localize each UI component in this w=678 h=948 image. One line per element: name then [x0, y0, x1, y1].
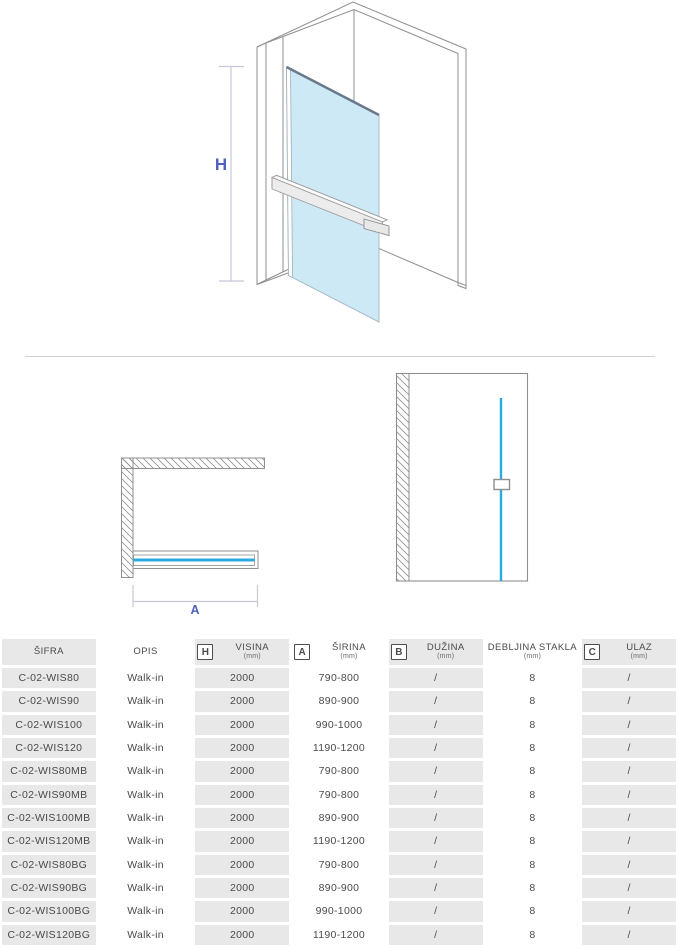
- height-dim-label: H: [215, 155, 227, 174]
- top-view: A: [122, 458, 265, 617]
- table-cell: C-02-WIS100BG: [2, 901, 96, 921]
- table-row: C-02-WIS90BGWalk-in2000890-900/8/: [2, 878, 676, 898]
- table-cell: Walk-in: [99, 738, 193, 758]
- table-cell: Walk-in: [99, 901, 193, 921]
- table-cell: 8: [486, 878, 580, 898]
- table-cell: /: [389, 738, 483, 758]
- table-cell: Walk-in: [99, 878, 193, 898]
- table-row: C-02-WIS100Walk-in2000990-1000/8/: [2, 715, 676, 735]
- table-cell: /: [389, 761, 483, 781]
- table-row: C-02-WIS90MBWalk-in2000790-800/8/: [2, 785, 676, 805]
- side-outline: [397, 374, 528, 582]
- table-row: C-02-WIS90Walk-in2000890-900/8/: [2, 691, 676, 711]
- table-cell: 990-1000: [292, 715, 386, 735]
- table-cell: Walk-in: [99, 668, 193, 688]
- table-cell: C-02-WIS100MB: [2, 808, 96, 828]
- table-cell: C-02-WIS100: [2, 715, 96, 735]
- table-cell: C-02-WIS120: [2, 738, 96, 758]
- spec-table: ŠIFRAOPISHVISINA(mm)AŠIRINA(mm)BDUŽINA(m…: [0, 637, 678, 948]
- table-cell: /: [582, 855, 676, 875]
- table-cell: 2000: [195, 761, 289, 781]
- table-cell: /: [582, 831, 676, 851]
- table-cell: 2000: [195, 691, 289, 711]
- table-cell: 1190-1200: [292, 925, 386, 945]
- table-cell: 2000: [195, 738, 289, 758]
- table-row: C-02-WIS120Walk-in20001190-1200/8/: [2, 738, 676, 758]
- table-cell: Walk-in: [99, 785, 193, 805]
- table-cell: 2000: [195, 878, 289, 898]
- column-header-label: DEBLJINA STAKLA(mm): [488, 643, 578, 660]
- table-row: C-02-WIS100MBWalk-in2000890-900/8/: [2, 808, 676, 828]
- product-drawing: H A: [0, 0, 678, 636]
- table-cell: 8: [486, 715, 580, 735]
- table-cell: Walk-in: [99, 925, 193, 945]
- side-bracket: [494, 480, 510, 490]
- table-cell: /: [389, 925, 483, 945]
- table-cell: /: [389, 668, 483, 688]
- wall-hatched-top: [122, 458, 265, 469]
- table-cell: /: [582, 785, 676, 805]
- column-header: ŠIFRA: [2, 639, 96, 665]
- table-cell: 8: [486, 761, 580, 781]
- column-header-label: ULAZ(mm): [604, 643, 674, 660]
- table-cell: 2000: [195, 715, 289, 735]
- table-cell: 2000: [195, 901, 289, 921]
- width-dim-label: A: [190, 603, 199, 617]
- column-header: AŠIRINA(mm): [292, 639, 386, 665]
- dimension-letter-icon: A: [294, 644, 310, 660]
- table-cell: 2000: [195, 668, 289, 688]
- isometric-view: H: [215, 2, 466, 322]
- table-cell: /: [582, 901, 676, 921]
- table-cell: /: [389, 878, 483, 898]
- column-header: OPIS: [99, 639, 193, 665]
- table-cell: 2000: [195, 925, 289, 945]
- table-cell: 790-800: [292, 761, 386, 781]
- column-header: DEBLJINA STAKLA(mm): [486, 639, 580, 665]
- table-cell: 1190-1200: [292, 738, 386, 758]
- table-cell: Walk-in: [99, 808, 193, 828]
- table-cell: /: [389, 831, 483, 851]
- table-cell: 990-1000: [292, 901, 386, 921]
- table-cell: /: [389, 691, 483, 711]
- column-header-label: VISINA(mm): [217, 643, 287, 660]
- table-cell: 2000: [195, 855, 289, 875]
- table-cell: 8: [486, 668, 580, 688]
- side-view: [397, 374, 528, 582]
- table-cell: /: [582, 738, 676, 758]
- table-cell: C-02-WIS80BG: [2, 855, 96, 875]
- table-cell: /: [582, 878, 676, 898]
- table-cell: 2000: [195, 785, 289, 805]
- table-cell: C-02-WIS120BG: [2, 925, 96, 945]
- table-cell: 8: [486, 808, 580, 828]
- table-cell: 2000: [195, 808, 289, 828]
- table-cell: Walk-in: [99, 761, 193, 781]
- table-cell: Walk-in: [99, 831, 193, 851]
- table-row: C-02-WIS100BGWalk-in2000990-1000/8/: [2, 901, 676, 921]
- table-cell: /: [582, 808, 676, 828]
- table-cell: /: [389, 715, 483, 735]
- table-cell: Walk-in: [99, 855, 193, 875]
- column-header-label: ŠIRINA(mm): [314, 643, 384, 660]
- table-cell: C-02-WIS80MB: [2, 761, 96, 781]
- table-cell: Walk-in: [99, 715, 193, 735]
- table-cell: 8: [486, 855, 580, 875]
- table-cell: C-02-WIS90BG: [2, 878, 96, 898]
- table-cell: 8: [486, 831, 580, 851]
- table-cell: Walk-in: [99, 691, 193, 711]
- table-cell: /: [582, 761, 676, 781]
- wall-end-face: [257, 43, 266, 285]
- table-cell: C-02-WIS90MB: [2, 785, 96, 805]
- column-header-label: OPIS: [101, 647, 191, 657]
- column-header-label: DUŽINA(mm): [411, 643, 481, 660]
- table-cell: /: [582, 668, 676, 688]
- column-header: HVISINA(mm): [195, 639, 289, 665]
- table-cell: 790-800: [292, 785, 386, 805]
- table-cell: /: [389, 808, 483, 828]
- wall-hatched-side: [397, 374, 410, 582]
- table-cell: 8: [486, 925, 580, 945]
- table-cell: C-02-WIS90: [2, 691, 96, 711]
- table-row: C-02-WIS120MBWalk-in20001190-1200/8/: [2, 831, 676, 851]
- table-cell: /: [582, 925, 676, 945]
- table-cell: 8: [486, 901, 580, 921]
- table-cell: 890-900: [292, 808, 386, 828]
- table-cell: /: [389, 855, 483, 875]
- table-row: C-02-WIS120BGWalk-in20001190-1200/8/: [2, 925, 676, 945]
- table-cell: /: [389, 901, 483, 921]
- table-cell: C-02-WIS120MB: [2, 831, 96, 851]
- table-row: C-02-WIS80MBWalk-in2000790-800/8/: [2, 761, 676, 781]
- column-header: BDUŽINA(mm): [389, 639, 483, 665]
- column-header: CULAZ(mm): [582, 639, 676, 665]
- width-dimension: A: [133, 585, 258, 617]
- table-cell: 890-900: [292, 691, 386, 711]
- table-cell: 2000: [195, 831, 289, 851]
- table-cell: 790-800: [292, 668, 386, 688]
- table-row: C-02-WIS80BGWalk-in2000790-800/8/: [2, 855, 676, 875]
- wall-hatched-left: [122, 458, 134, 578]
- table-cell: /: [389, 785, 483, 805]
- dimension-letter-icon: H: [197, 644, 213, 660]
- height-dimension: H: [215, 67, 244, 282]
- table-cell: 790-800: [292, 855, 386, 875]
- table-cell: C-02-WIS80: [2, 668, 96, 688]
- table-cell: 8: [486, 738, 580, 758]
- table-cell: 8: [486, 785, 580, 805]
- table-cell: /: [582, 691, 676, 711]
- table-cell: 1190-1200: [292, 831, 386, 851]
- table-row: C-02-WIS80Walk-in2000790-800/8/: [2, 668, 676, 688]
- table-cell: 8: [486, 691, 580, 711]
- column-header-label: ŠIFRA: [4, 647, 94, 657]
- table-cell: 890-900: [292, 878, 386, 898]
- table-cell: /: [582, 715, 676, 735]
- dimension-letter-icon: C: [584, 644, 600, 660]
- dimension-letter-icon: B: [391, 644, 407, 660]
- table-header-row: ŠIFRAOPISHVISINA(mm)AŠIRINA(mm)BDUŽINA(m…: [2, 639, 676, 665]
